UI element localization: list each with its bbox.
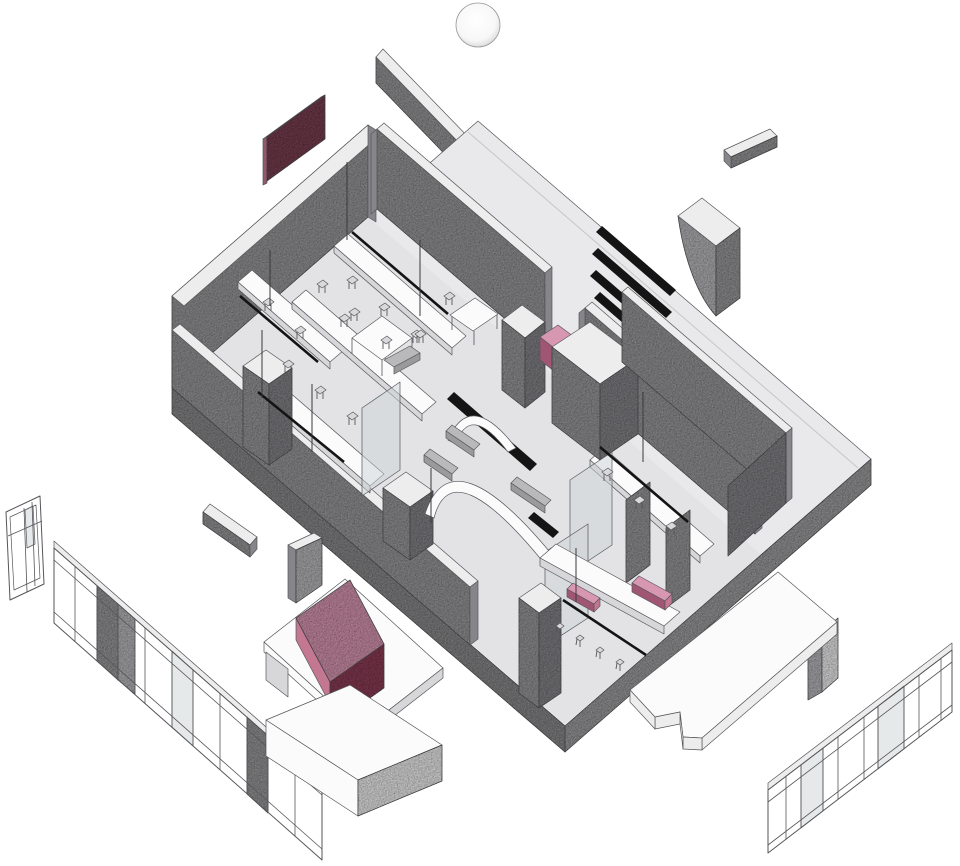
pillar-front [519,598,539,708]
north-wall-seg1-capL [371,129,377,214]
curtain-wall-panel [118,604,135,694]
window-frame-inner [10,505,40,590]
sw-wall-cap [470,581,478,645]
exploded-curtain-wall-left [54,541,322,860]
panel-side-edge [263,137,267,185]
panel-side [288,545,296,603]
exploded-beam [203,504,257,557]
partition-cap [786,428,792,503]
floating-bar [724,129,777,168]
exploded-panel [288,533,322,603]
exploded-curtain-wall-right [768,643,952,853]
axonometric-diagram-canvas: Exploded axonometric diagram of an inter… [0,0,960,866]
pillar-side [539,598,561,708]
exploded-window-unit [6,496,44,600]
table-edge [683,737,702,750]
curtain-wall-sill [768,705,952,845]
panel-face [267,95,325,181]
curtain-wall-rail [768,662,952,802]
sun-circle [456,3,500,47]
curtain-wall-frame [768,650,952,853]
curved-concrete-volume [678,198,740,316]
axonometric-diagram: Exploded axonometric diagram of an inter… [0,0,960,866]
